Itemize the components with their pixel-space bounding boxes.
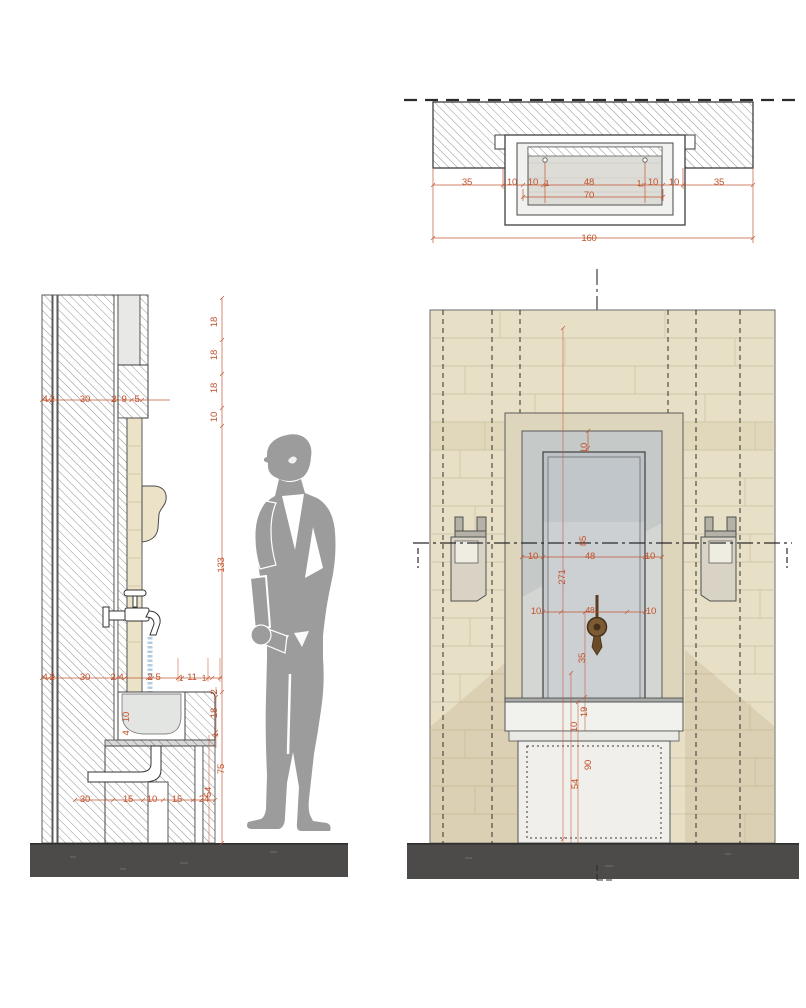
dim-label: 30 xyxy=(80,395,90,405)
dim-label: 18 xyxy=(210,383,220,393)
dim-label: 10 xyxy=(669,178,679,188)
dim-label: 48 xyxy=(584,178,594,188)
figure-glass xyxy=(250,576,270,630)
anchor-point xyxy=(643,158,647,162)
drawing-sheet: 35 10 10 1 48 1 10 10 35 70 160 4 2 30 2… xyxy=(0,0,806,1008)
basin-section xyxy=(118,692,215,740)
dim-label: 11 xyxy=(187,673,196,683)
elevation-plinth xyxy=(407,843,799,879)
dim-label: 133 xyxy=(217,557,227,572)
dim-label: 271 xyxy=(558,569,568,584)
dim-label: 4 xyxy=(122,730,132,735)
dim-label: 18 xyxy=(210,350,220,360)
dim-label: 5 xyxy=(134,395,139,405)
dim-label: 10 xyxy=(646,607,656,617)
dim-label: 10 xyxy=(210,412,220,422)
dim-label: 10 xyxy=(648,178,658,188)
dim-label: 35 xyxy=(462,178,472,188)
dim-label: 2 xyxy=(49,673,54,683)
dim-label: 4 xyxy=(118,673,123,683)
cladding-strip-top xyxy=(140,295,148,365)
elevation-basin xyxy=(505,698,683,843)
human-scale-figure xyxy=(230,430,350,845)
figure-head xyxy=(264,434,312,481)
dim-label: 2 xyxy=(147,673,152,683)
dim-label: 24 xyxy=(199,795,209,805)
figure-hand xyxy=(251,625,271,645)
dim-label: 9 xyxy=(121,395,126,405)
tap-spout xyxy=(146,611,160,635)
section-plinth xyxy=(30,843,348,877)
dim-label: 10 xyxy=(570,722,580,732)
dim-label: 10 xyxy=(645,552,655,562)
dim-label: 10 xyxy=(122,712,132,722)
dim-label: 10 xyxy=(531,607,541,617)
stone-corbel-profile xyxy=(142,486,166,542)
dim-label: 1 xyxy=(545,178,550,188)
dim-label: 85 xyxy=(579,536,589,546)
dim-label: 10 xyxy=(580,443,590,453)
dim-label: 18 xyxy=(210,317,220,327)
elevation-view-drawing xyxy=(405,265,805,885)
mortar-shade xyxy=(105,740,215,746)
dim-label: 15 xyxy=(172,795,182,805)
dim-label: 2 xyxy=(110,673,115,683)
dim-label: 5 xyxy=(155,673,160,683)
dim-label: 15 xyxy=(123,795,133,805)
plan-spout-wall xyxy=(528,147,662,156)
plan-view-drawing xyxy=(400,85,806,260)
tap-body xyxy=(125,608,149,621)
dim-label: 48 xyxy=(585,552,595,562)
dim-label: 48 xyxy=(585,605,594,615)
dim-label: 4 xyxy=(42,395,47,405)
dim-label: 10 xyxy=(507,178,517,188)
dim-label: 10 xyxy=(147,795,157,805)
plan-niche xyxy=(495,135,695,225)
dim-label: 160 xyxy=(581,234,596,244)
dim-label: 10 xyxy=(528,552,538,562)
corbel-cap-block xyxy=(118,365,148,418)
dim-label: 30 xyxy=(80,673,90,683)
dim-label: 35 xyxy=(714,178,724,188)
dim-label: 4 xyxy=(42,673,47,683)
dim-label: 19 xyxy=(580,707,590,717)
dim-label: 2 xyxy=(49,395,54,405)
dim-label: 54 xyxy=(571,779,581,789)
dim-label: 1 xyxy=(637,178,642,188)
dim-label: 35 xyxy=(578,653,588,663)
dim-label: 10 xyxy=(528,178,538,188)
dim-label: 2 xyxy=(111,395,116,405)
drain-channel xyxy=(148,782,168,843)
dim-label: 1 xyxy=(210,733,220,738)
anchor-point xyxy=(543,158,547,162)
dim-label: 70 xyxy=(584,191,594,201)
render-strip xyxy=(118,418,127,692)
elevation-pedestal xyxy=(518,741,670,843)
dim-label: 18 xyxy=(210,708,220,718)
dim-label: 2 xyxy=(210,689,220,694)
tap-handle xyxy=(124,590,146,596)
dim-label: 90 xyxy=(584,760,594,770)
dim-label: 1 xyxy=(179,673,184,683)
stone-lining-strip xyxy=(127,418,142,692)
dim-label: 30 xyxy=(80,795,90,805)
plaster-strip xyxy=(118,295,140,365)
dim-label: 75 xyxy=(217,764,227,774)
dim-label: 1 xyxy=(202,673,207,683)
